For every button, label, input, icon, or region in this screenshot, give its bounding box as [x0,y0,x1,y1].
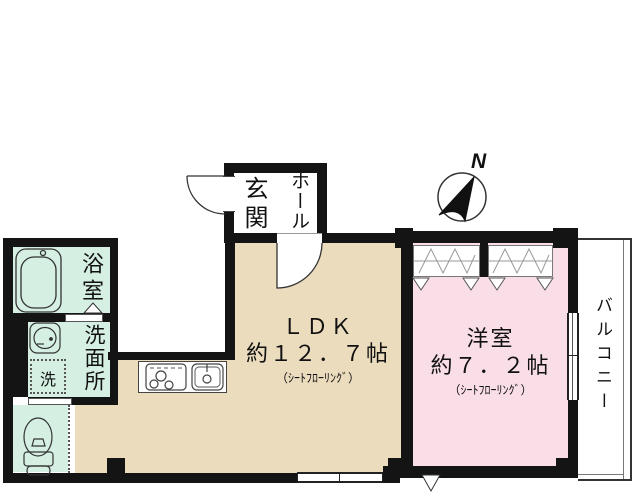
ldk-area: 約１２．７帖 [235,341,401,368]
western-room-area: 約７．２帖 [413,353,568,380]
ldk-flooring-note: （ｼｰﾄﾌﾛｰﾘﾝｸﾞ） [235,371,401,386]
entrance-door-swing-icon [187,176,225,214]
kitchen-sink-icon [192,364,223,390]
hall-label: ホール [285,171,312,231]
western-room-label-block: 洋室 約７．２帖 （ｼｰﾄﾌﾛｰﾘﾝｸﾞ） [413,326,568,397]
western-room-flooring-note: （ｼｰﾄﾌﾛｰﾘﾝｸﾞ） [413,383,568,398]
western-room-name: 洋室 [413,326,568,353]
plan-symbols-layer [0,0,640,500]
hall-door-swing-icon [277,243,322,288]
north-compass-icon [438,173,486,221]
vanity-sink-icon [30,323,60,353]
floor-plan: 玄関 ホール 浴室 洗面所 洗 バルコニー ＬＤＫ 約１２．７帖 （ｼｰﾄﾌﾛｰ… [0,0,640,500]
closet-doors-pattern-icon [414,249,552,273]
bathroom-label: 浴室 [75,252,107,306]
washer-label: 洗 [30,366,66,390]
balcony-label: バルコニー [590,296,615,416]
western-south-triangle-icon [422,475,440,491]
closet-swing-triangles-icon [413,278,553,290]
toilet-icon [24,418,53,475]
washroom-label: 洗面所 [78,324,108,393]
genkan-label: 玄関 [236,176,271,234]
ldk-label-block: ＬＤＫ 約１２．７帖 （ｼｰﾄﾌﾛｰﾘﾝｸﾞ） [235,314,401,385]
north-label: N [471,150,486,174]
bathtub-icon [16,249,61,312]
ldk-name: ＬＤＫ [235,314,401,341]
stove-burner-icon [146,364,186,390]
